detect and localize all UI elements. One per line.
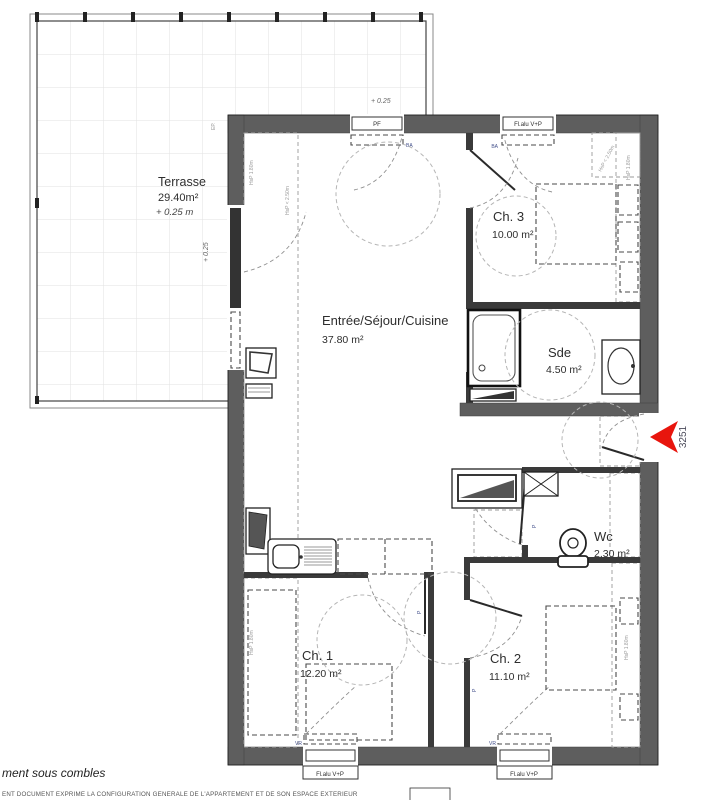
floorplan-page: Terrasse 29.40m² + 0.25 m + 0.25 + 0.25 …	[0, 0, 717, 800]
partition-ch3-left-top	[466, 133, 473, 150]
ba-label: BA	[491, 144, 498, 150]
hsp-label: HsP < 2.50m	[285, 186, 291, 215]
bathtub	[468, 310, 520, 386]
tv-unit	[246, 348, 276, 398]
hsp-label: HsP 1.80m	[626, 155, 632, 180]
washbasin-faucet-icon	[631, 364, 635, 368]
window-top-label: Fl.alu V+P	[514, 122, 542, 128]
exterior-wall-bottom	[228, 747, 658, 765]
unit-number-label: 3251	[678, 425, 689, 448]
footer: ment sous combles ENT DOCUMENT EXPRIME L…	[2, 766, 450, 800]
exterior-wall-top	[228, 115, 658, 133]
room-area-wc: 2.30 m²	[594, 548, 630, 560]
window-bottom-2-label: Fl.alu V+P	[510, 772, 538, 778]
room-area-living: 37.80 m²	[322, 334, 364, 346]
room-label-ch1: Ch. 1	[302, 648, 333, 663]
media-shelf	[246, 384, 272, 398]
footer-caption: ment sous combles	[2, 766, 105, 780]
room-area-ch2: 11.10 m²	[489, 671, 530, 683]
terrace-area-label: 29.40m²	[158, 192, 199, 204]
vr-label: VR	[295, 741, 302, 747]
terrace-level-label: + 0.25 m	[156, 207, 193, 218]
window-pf-label: PF	[373, 122, 381, 128]
washbasin	[608, 348, 634, 384]
vr-label: VR	[489, 741, 496, 747]
partition-ch2-left	[464, 658, 470, 747]
room-area-sde: 4.50 m²	[546, 364, 582, 376]
partition-wc-left	[522, 545, 528, 557]
terrace-level-mark: + 0.25	[371, 98, 391, 105]
room-label-ch2: Ch. 2	[490, 651, 521, 666]
partition-ch2-left-top	[464, 563, 470, 600]
hsp-label: HsP 1.80m	[249, 160, 255, 185]
terrace-label: Terrasse	[158, 175, 206, 189]
toilet	[558, 529, 588, 567]
apartment-floor	[228, 115, 658, 765]
room-label-wc: Wc	[594, 529, 613, 544]
ep-label: EP.	[211, 123, 217, 130]
window-bottom-1-label: Fl.alu V+P	[316, 772, 344, 778]
room-area-ch3: 10.00 m²	[492, 229, 534, 241]
kitchen-sink-basin	[273, 545, 299, 568]
floorplan-canvas: Terrasse 29.40m² + 0.25 m + 0.25 + 0.25 …	[0, 0, 717, 800]
terrace-level-side-mark: + 0.25	[203, 242, 210, 262]
room-label-sde: Sde	[548, 345, 571, 360]
partition-ch3-left	[466, 208, 473, 302]
apartment	[228, 115, 658, 765]
room-label-ch3: Ch. 3	[493, 209, 524, 224]
hsp-label: HsP 1.80m	[624, 635, 630, 660]
kitchen-appliance	[249, 512, 267, 549]
kitchen-drainer	[304, 547, 332, 565]
room-area-ch1: 12.20 m²	[300, 668, 342, 680]
terrace-door-panel	[230, 208, 241, 308]
partition-sde-top	[466, 302, 640, 309]
partition-ch1-right	[428, 578, 434, 747]
footer-box	[410, 788, 450, 800]
footer-legal: ENT DOCUMENT EXPRIME LA CONFIGURATION GE…	[2, 791, 358, 798]
hsp-label: HsP 1.80m	[249, 630, 255, 655]
kitchen-faucet-icon	[299, 555, 303, 559]
room-label-living: Entrée/Séjour/Cuisine	[322, 313, 448, 328]
toilet-tank	[558, 556, 588, 567]
